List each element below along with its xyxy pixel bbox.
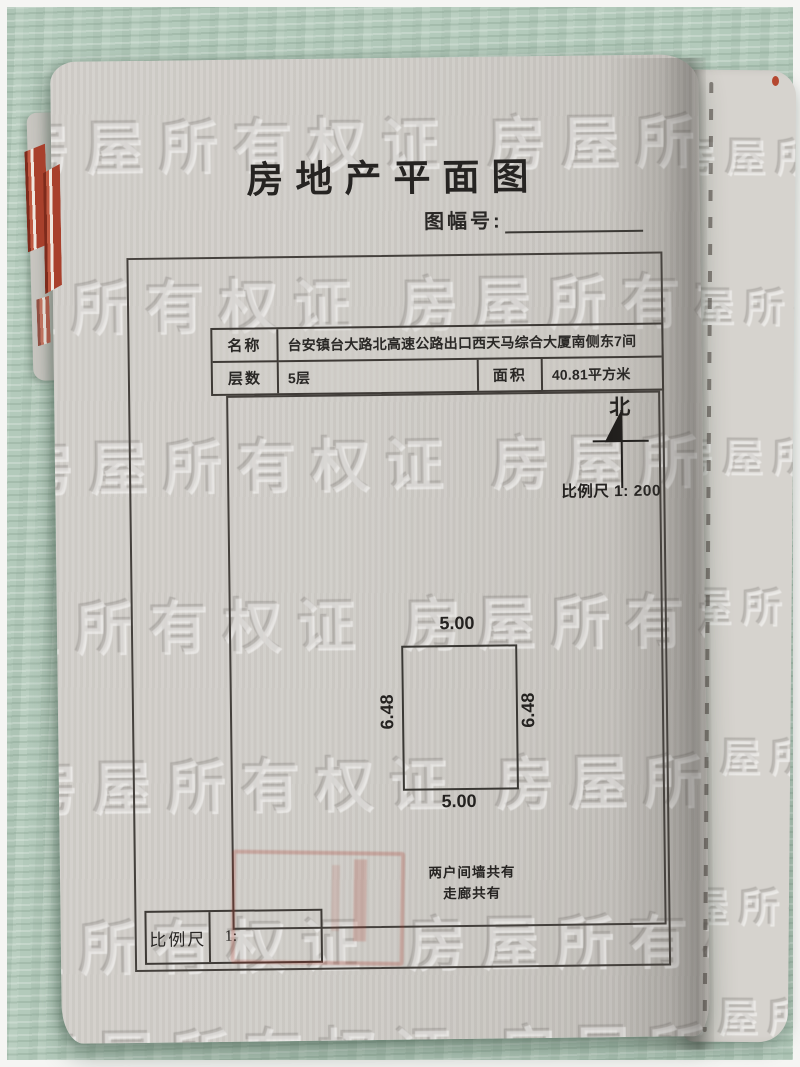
scale-label-cell: 比例尺 [146, 912, 211, 963]
name-value-cell: 台安镇台大路北高速公路出口西天马综合大厦南侧东7间 [278, 325, 661, 363]
north-arrow-stem [620, 410, 623, 488]
sheet-number-label: 图幅号: [424, 204, 503, 234]
dimension-right: 6.48 [517, 665, 540, 755]
red-seal-stamp [231, 850, 406, 966]
red-mark [772, 76, 779, 86]
red-seal-stroke [353, 859, 367, 941]
photo-of-document: 房屋所有权证 房屋所有权证 房屋所有权证 房屋所有权证 房屋所有权证 房屋所有权… [0, 0, 800, 1067]
floor-plan-rectangle [401, 644, 519, 790]
north-arrow-icon [604, 410, 621, 442]
area-value-cell: 40.81平方米 [543, 358, 662, 390]
property-info-table: 名称 台安镇台大路北高速公路出口西天马综合大厦南侧东7间 层数 5层 面积 40… [210, 323, 664, 397]
page-title: 房地产平面图 [221, 146, 566, 204]
share-note-line: 两户间墙共有 [387, 862, 557, 885]
red-seal-stroke [331, 865, 340, 931]
floors-value-cell: 5层 [279, 360, 479, 393]
floors-label-cell: 层数 [213, 362, 279, 394]
name-label-cell: 名称 [212, 329, 278, 363]
scale-note: 比例尺 1: 200 [561, 479, 661, 502]
sheet-number-row: 图幅号: [424, 203, 643, 235]
cover-ornament [43, 164, 62, 294]
north-arrow-crossbar [593, 440, 649, 443]
sheet-number-blank-line [505, 206, 643, 234]
dimension-top: 5.00 [401, 612, 513, 634]
dimension-bottom: 5.00 [403, 790, 515, 812]
cover-ornament [36, 296, 51, 346]
shared-ownership-notes: 两户间墙共有 走廊共有 [387, 862, 557, 906]
dimension-left: 6.48 [376, 667, 399, 757]
certificate-page: 房屋所有权证 房屋所有权证 房屋所有权证 房屋所有权证 房屋所有权证 房屋所有权… [50, 54, 710, 1044]
share-note-line: 走廊共有 [387, 883, 557, 906]
area-label-cell: 面积 [479, 359, 543, 391]
page-content: 房地产平面图 图幅号: 名称 台安镇台大路北高速公路出口西天马综合大厦南侧东7间… [50, 54, 710, 1044]
